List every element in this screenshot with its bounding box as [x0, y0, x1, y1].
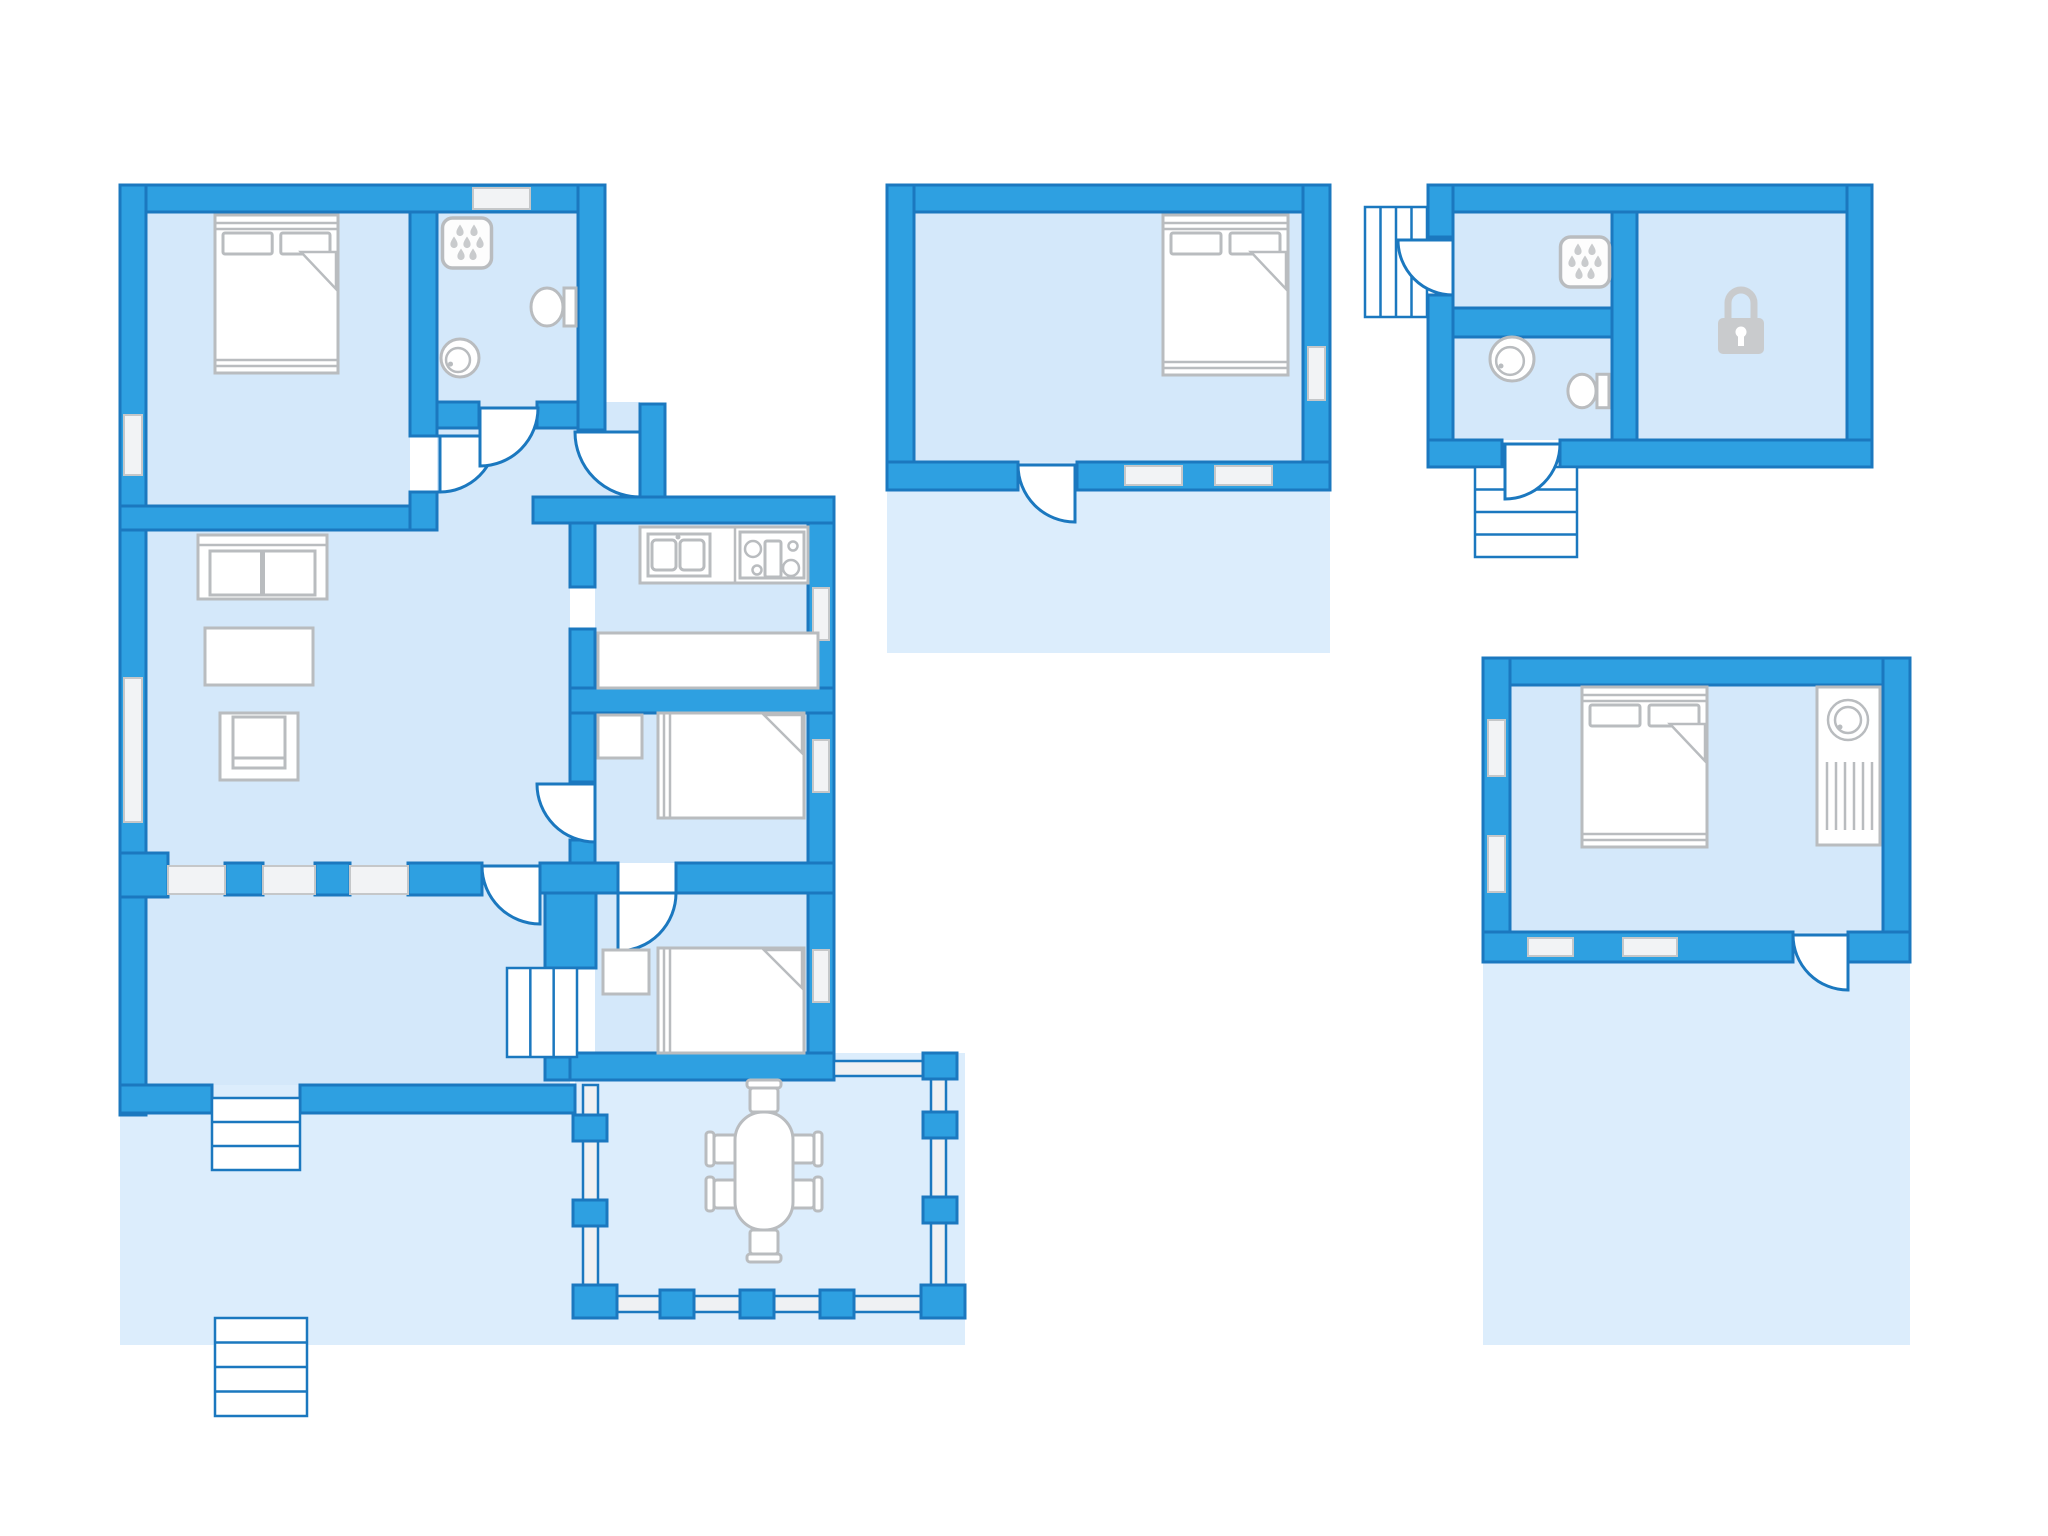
sauna-shower-icon [1561, 237, 1610, 287]
deck-post [573, 1115, 607, 1141]
building-sauna-house [1365, 185, 1872, 557]
bedroom1-double-bed [215, 215, 338, 373]
deck-post-se [921, 1285, 965, 1318]
sink-basin [680, 540, 704, 570]
deck-railing [931, 1138, 946, 1197]
window-ga-south-2 [1215, 466, 1272, 485]
building-guesthouse-b [1483, 658, 1910, 1345]
wall-ga-left [887, 185, 914, 490]
guesthouse-b-terrace [1483, 932, 1910, 1345]
living-room-sofa [198, 535, 327, 599]
deck-railing [834, 1061, 923, 1076]
wall-window-pillar-2 [315, 863, 350, 895]
wall-gb-top [1483, 658, 1910, 685]
steps-outline [212, 1098, 300, 1170]
wall-bedrooms-divider-w [540, 863, 618, 893]
wall-ga-top [887, 185, 1330, 212]
deck-post [573, 1200, 607, 1226]
pillow [1171, 233, 1221, 254]
chair-seat [750, 1088, 778, 1112]
nightstand-top [598, 715, 642, 758]
window-gb-west-1 [1488, 720, 1505, 776]
bathroom-toilet [531, 288, 576, 326]
wall-bedroom2-west-n [570, 713, 595, 782]
floor-plan [0, 0, 2048, 1536]
steps-outline [507, 968, 577, 1057]
living-room-armchair [220, 713, 298, 780]
wall-bedroom1-south [120, 506, 437, 530]
bedroom2-single-bed [658, 713, 804, 818]
drain-dot [1499, 364, 1504, 369]
building-main-house [120, 185, 965, 1416]
wall-bathroom-south-w [437, 402, 479, 428]
wall-kitchen-south [570, 688, 834, 713]
window-veranda-2 [263, 866, 315, 894]
shower-dot [1838, 725, 1843, 730]
wall-veranda-south-e [300, 1085, 575, 1113]
wall-window-pillar-3 [408, 863, 482, 895]
deck-railing [617, 1296, 660, 1312]
pillow [223, 233, 272, 254]
nightstand-top [603, 950, 649, 994]
wall-kitchen-west-s [570, 629, 595, 688]
toilet-tank [1597, 374, 1609, 407]
wall-gb-bottom-e [1848, 932, 1910, 962]
window-veranda-1 [168, 866, 225, 894]
wall-bedrooms-divider-e [676, 863, 834, 893]
kitchen-island-counter [598, 633, 818, 688]
deck-railing [774, 1296, 820, 1312]
wall-sa-right [1847, 185, 1872, 467]
wall-sa-bottom-e [1560, 440, 1872, 467]
window-bedroom2-east [813, 740, 829, 792]
deck-post [820, 1290, 854, 1318]
toilet-bowl [531, 288, 563, 326]
deck-post [923, 1112, 957, 1138]
window-living-west [124, 678, 142, 822]
sofa-cushion [264, 551, 316, 595]
window-gb-west-2 [1488, 836, 1505, 892]
sofa-cushion [210, 551, 262, 595]
deck-post-sw [573, 1285, 617, 1318]
wall-ga-bottom-w [887, 462, 1018, 490]
deck-railing [583, 1226, 598, 1285]
bathroom-sink [441, 339, 479, 377]
armchair-back [233, 758, 285, 768]
steps-terrace-south [215, 1318, 307, 1416]
deck-post [660, 1290, 694, 1318]
deck-railing [854, 1296, 921, 1312]
wall-bedroom3-south [570, 1053, 834, 1080]
armchair-seat [233, 717, 285, 758]
wall-sa-divider-h [1453, 308, 1612, 337]
bedroom3-single-bed [658, 948, 804, 1053]
wall-ga-bottom-e [1077, 462, 1330, 490]
wall-veranda-nw-pier [120, 853, 168, 897]
deck-post-ne [923, 1053, 957, 1079]
faucet-dot [676, 535, 681, 540]
window-gb-south-2 [1623, 938, 1677, 956]
bathroom-shower-icon [443, 218, 492, 268]
deck-railing [931, 1223, 946, 1285]
window-ga-east [1308, 347, 1325, 400]
drain-dot [448, 362, 453, 367]
building-guesthouse-a [887, 185, 1330, 653]
guesthouse-b-shower-unit [1817, 687, 1880, 845]
guesthouse-a-double-bed [1163, 215, 1288, 375]
wall-top [120, 185, 605, 212]
padlock-keyhole-stem [1738, 334, 1744, 346]
living-room-coffee-table [205, 628, 313, 685]
sauna-wc-toilet [1568, 374, 1609, 407]
chair-back [747, 1254, 781, 1262]
deck-railing [583, 1085, 598, 1115]
window-bathroom-north [473, 188, 530, 209]
toilet-bowl [1568, 374, 1596, 407]
wall-bedroom2-west-s [570, 840, 595, 865]
stove-center [765, 541, 781, 577]
pillow [1590, 705, 1640, 726]
wall-gb-right [1883, 658, 1910, 962]
deck-railing [931, 1079, 946, 1112]
wall-ga-right [1303, 185, 1330, 490]
window-ga-south-1 [1125, 466, 1182, 485]
wall-bathroom-east [578, 185, 605, 430]
dining-table [735, 1112, 793, 1230]
coffee-table-top [205, 628, 313, 685]
wall-kitchen-west-n [570, 523, 595, 587]
guesthouse-b-double-bed [1582, 687, 1707, 847]
wall-veranda-south-w [120, 1085, 212, 1113]
wall-veranda-east-n [545, 893, 596, 968]
steps-veranda-south [212, 1098, 300, 1170]
main-terrace [120, 1085, 575, 1345]
window-veranda-3 [350, 866, 408, 894]
deck-railing [583, 1141, 598, 1200]
sink-basin [652, 540, 676, 570]
wall-gb-left [1483, 658, 1510, 962]
steps-veranda-to-deck [507, 968, 577, 1057]
chair-seat [750, 1230, 778, 1254]
deck-railing [694, 1296, 740, 1312]
wall-left [120, 185, 146, 1115]
wall-window-pillar-1 [225, 863, 263, 895]
toilet-tank [564, 288, 576, 326]
wall-divider-stub [410, 492, 437, 530]
wall-kitchen-north [533, 497, 834, 523]
sauna-wc-sink [1490, 337, 1534, 381]
deck-post [740, 1290, 774, 1318]
bedroom3-nightstand [603, 950, 649, 994]
wall-sa-bottom-w [1428, 440, 1502, 467]
deck-post [923, 1197, 957, 1223]
wall-sa-left-n [1428, 185, 1453, 237]
window-bedroom3-east [813, 950, 829, 1002]
window-bedroom1-west [124, 415, 142, 475]
wall-sa-divider-v [1612, 212, 1637, 440]
window-gb-south-1 [1528, 938, 1573, 956]
wall-bed1-bath-divider [410, 212, 437, 436]
floor-plan-page [0, 0, 2048, 1536]
counter-top [598, 633, 818, 688]
kitchen-counter-sink-stove [640, 527, 808, 583]
bedroom2-nightstand [598, 715, 642, 758]
wall-sa-top [1428, 185, 1872, 212]
